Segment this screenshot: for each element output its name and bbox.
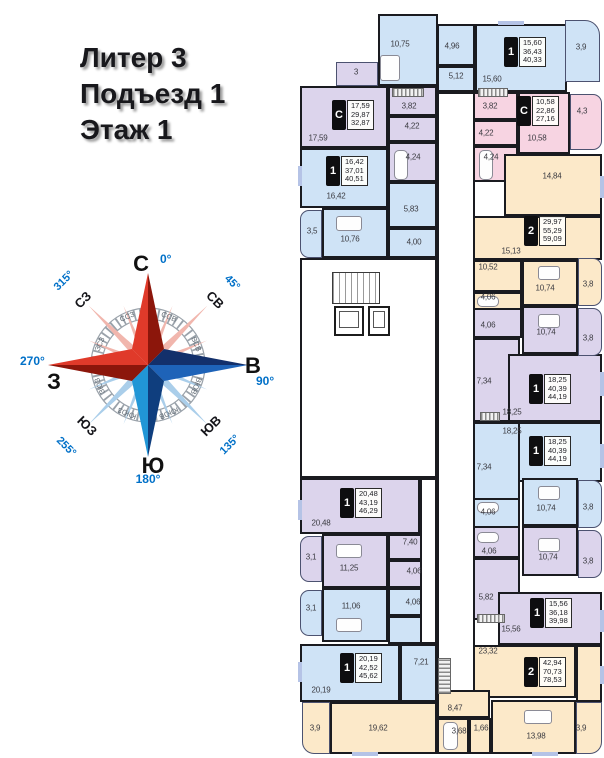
room-area-label: 3,8 xyxy=(583,334,594,343)
table-icon xyxy=(336,618,362,632)
room-area-label: 4,06 xyxy=(407,567,422,576)
apartment-area-value: 44,19 xyxy=(548,393,567,402)
room-kitchen xyxy=(322,534,388,588)
apartment-area-value: 45,62 xyxy=(359,672,378,681)
room-area-label: 10,74 xyxy=(536,328,555,337)
room-area-label: 10,52 xyxy=(478,263,497,272)
apartment-badge: 118,2540,3944,19 xyxy=(529,374,571,404)
apartment-areas-box: 18,2540,3944,19 xyxy=(544,436,571,466)
elevator-cab xyxy=(339,311,359,328)
window-segment xyxy=(298,662,302,682)
room-area-label: 14,84 xyxy=(542,172,561,181)
apartment-areas-box: 20,4843,1946,29 xyxy=(355,488,382,518)
table-icon xyxy=(336,544,362,558)
room-area-label: 19,62 xyxy=(368,724,387,733)
apartment-badge: 116,4237,0140,51 xyxy=(326,156,368,186)
room-area-label: 3,82 xyxy=(402,102,417,111)
room-area-label: 7,40 xyxy=(403,538,418,547)
room-area-label: 5,12 xyxy=(449,72,464,81)
apartment-badge: 115,5636,1839,98 xyxy=(530,598,572,628)
doormat xyxy=(477,614,505,623)
compass-label-ese: ВЮВ xyxy=(189,376,204,396)
apartment-rooms-count: 2 xyxy=(524,657,538,687)
room-corridor xyxy=(437,92,475,692)
room-area-label: 3 xyxy=(354,68,358,77)
apartment-areas-box: 20,1942,5245,62 xyxy=(355,653,382,683)
room-area-label: 4,06 xyxy=(482,547,497,556)
compass-label-ssw: ЮЮЗ xyxy=(116,405,138,421)
apartment-rooms-count: 1 xyxy=(326,156,340,186)
room-area-label: 3,5 xyxy=(307,227,318,236)
table-icon xyxy=(336,216,362,231)
room-area-label: 4,00 xyxy=(407,238,422,247)
elevator-icon xyxy=(368,306,390,336)
room-area-label: 4,06 xyxy=(481,321,496,330)
compass-deg-45: 45° xyxy=(222,273,242,293)
room-bathroom xyxy=(472,308,522,338)
room-area-label: 15,60 xyxy=(482,75,501,84)
apartment-areas-box: 29,9755,2959,09 xyxy=(539,216,566,246)
doormat xyxy=(392,88,424,97)
apartment-badge: 120,1942,5245,62 xyxy=(340,653,382,683)
apartment-areas-box: 15,5636,1839,98 xyxy=(545,598,572,628)
floor-plan-page: Литер 3 Подъезд 1 Этаж 1 xyxy=(0,0,604,758)
room-kitchen xyxy=(491,700,576,754)
room-room xyxy=(576,645,602,702)
apartment-rooms-count: 1 xyxy=(529,436,543,466)
room-area-label: 17,59 xyxy=(308,134,327,143)
room-area-label: 4,22 xyxy=(405,122,420,131)
room-area-label: 4,06 xyxy=(481,293,496,302)
room-area-label: 3,8 xyxy=(583,503,594,512)
title-liter: Литер 3 xyxy=(80,40,225,76)
room-balcony xyxy=(578,530,602,578)
apartment-areas-box: 16,4237,0140,51 xyxy=(341,156,368,186)
room-area-label: 15,13 xyxy=(501,247,520,256)
compass-deg-255: 255° xyxy=(54,435,79,460)
window-segment xyxy=(298,500,302,520)
apartment-area-value: 32,87 xyxy=(351,119,370,128)
apartment-area-value: 78,53 xyxy=(543,676,562,685)
room-area-label: 10,74 xyxy=(535,284,554,293)
compass-label-north: С xyxy=(133,251,149,276)
window-segment xyxy=(352,752,378,756)
compass-deg-315: 315° xyxy=(52,269,77,294)
apartment-badge: 229,9755,2959,09 xyxy=(524,216,566,246)
apartment-area-value: 40,33 xyxy=(523,56,542,65)
compass-deg-0: 0° xyxy=(160,252,172,266)
apartment-rooms-count: 2 xyxy=(524,216,538,246)
compass-label-se: ЮВ xyxy=(197,412,224,439)
compass-deg-180: 180° xyxy=(136,472,161,485)
apartment-areas-box: 15,6036,4340,33 xyxy=(519,37,546,67)
compass-label-sse: ЮЮВ xyxy=(158,405,180,421)
room-area-label: 13,98 xyxy=(526,732,545,741)
window-segment xyxy=(600,666,604,684)
apartment-rooms-count: 1 xyxy=(340,488,354,518)
window-segment xyxy=(600,444,604,468)
room-balcony xyxy=(570,94,602,150)
table-icon xyxy=(380,55,400,81)
room-area-label: 4,24 xyxy=(406,153,421,162)
plan-title: Литер 3 Подъезд 1 Этаж 1 xyxy=(80,40,225,148)
window-segment xyxy=(600,372,604,396)
room-area-label: 5,83 xyxy=(404,205,419,214)
compass-label-west: З xyxy=(47,369,61,394)
room-area-label: 4,96 xyxy=(445,42,460,51)
compass-deg-135: 135° xyxy=(218,433,243,458)
room-area-label: 20,19 xyxy=(311,686,330,695)
compass-deg-270: 270° xyxy=(20,354,45,368)
room-area-label: 15,56 xyxy=(501,625,520,634)
apartment-areas-box: 42,9470,7378,53 xyxy=(539,657,566,687)
room-area-label: 10,75 xyxy=(390,40,409,49)
room-area-label: 10,58 xyxy=(527,134,546,143)
room-area-label: 18,25 xyxy=(502,408,521,417)
room-area-label: 7,34 xyxy=(477,377,492,386)
apartment-rooms-count: 1 xyxy=(340,653,354,683)
doormat xyxy=(438,658,451,694)
room-area-label: 20,48 xyxy=(311,519,330,528)
table-icon xyxy=(524,710,552,724)
apartment-badge: 120,4843,1946,29 xyxy=(340,488,382,518)
room-area-label: 18,25 xyxy=(502,427,521,436)
room-area-label: 7,21 xyxy=(414,658,429,667)
apartment-badge: 242,9470,7378,53 xyxy=(524,657,566,687)
table-icon xyxy=(538,486,560,500)
compass-label-ne: СВ xyxy=(203,288,227,312)
room-shaft xyxy=(420,478,437,644)
table-icon xyxy=(538,314,560,328)
apartment-rooms-count: 1 xyxy=(530,598,544,628)
apartment-badge: 115,6036,4340,33 xyxy=(504,37,546,67)
elevator-cab xyxy=(373,311,385,328)
room-area-label: 3,8 xyxy=(583,557,594,566)
apartment-areas-box: 17,5929,8732,87 xyxy=(347,100,374,130)
stairwell-icon xyxy=(332,272,380,304)
apartment-badge: С10,5822,8627,16 xyxy=(517,96,559,126)
room-area-label: 10,74 xyxy=(536,504,555,513)
elevator-icon xyxy=(334,306,364,336)
window-segment xyxy=(298,166,302,186)
room-area-label: 3,68 xyxy=(452,727,467,736)
window-segment xyxy=(600,610,604,632)
room-area-label: 3,1 xyxy=(306,604,317,613)
room-area-label: 4,24 xyxy=(484,153,499,162)
room-area-label: 3,9 xyxy=(576,43,587,52)
room-area-label: 10,74 xyxy=(538,553,557,562)
apartment-area-value: 46,29 xyxy=(359,507,378,516)
apartment-area-value: 27,16 xyxy=(536,115,555,124)
room-kitchen xyxy=(322,588,388,642)
doormat xyxy=(480,412,500,421)
table-icon xyxy=(538,266,560,280)
doormat xyxy=(478,88,508,97)
room-area-label: 4,22 xyxy=(479,129,494,138)
room-area-label: 8,47 xyxy=(448,704,463,713)
room-area-label: 1,66 xyxy=(474,724,489,733)
room-area-label: 10,76 xyxy=(340,235,359,244)
room-area-label: 5,82 xyxy=(479,593,494,602)
apartment-areas-box: 18,2540,3944,19 xyxy=(544,374,571,404)
apartment-areas-box: 10,5822,8627,16 xyxy=(532,96,559,126)
room-area-label: 4,06 xyxy=(406,598,421,607)
apartment-rooms-count: 1 xyxy=(504,37,518,67)
room-area-label: 3,82 xyxy=(483,102,498,111)
window-segment xyxy=(498,21,524,25)
apartment-badge: С17,5929,8732,87 xyxy=(332,100,374,130)
room-balcony xyxy=(300,590,322,636)
room-area-label: 11,06 xyxy=(342,602,360,611)
window-segment xyxy=(600,176,604,198)
room-area-label: 4,3 xyxy=(577,107,588,116)
room-area-label: 16,42 xyxy=(326,192,345,201)
bathtub-icon xyxy=(477,532,499,543)
apartment-area-value: 40,51 xyxy=(345,175,364,184)
room-area-label: 4,06 xyxy=(481,508,496,517)
apartment-rooms-count: С xyxy=(332,100,346,130)
compass-deg-90: 90° xyxy=(256,374,274,388)
apartment-area-value: 39,98 xyxy=(549,617,568,626)
room-area-label: 11,25 xyxy=(340,564,358,573)
table-icon xyxy=(538,538,560,552)
window-segment xyxy=(532,752,558,756)
room-hallway xyxy=(437,690,490,718)
compass-rose: С В Ю З 0° 90° 180° 270° 45° 135° 255° 3… xyxy=(18,250,286,485)
apartment-rooms-count: С xyxy=(517,96,531,126)
room-area-label: 3,1 xyxy=(306,553,317,562)
apartment-area-value: 44,19 xyxy=(548,455,567,464)
room-area-label: 23,32 xyxy=(478,647,497,656)
room-room xyxy=(504,154,602,216)
apartment-badge: 118,2540,3944,19 xyxy=(529,436,571,466)
room-balcony xyxy=(578,308,602,356)
apartment-rooms-count: 1 xyxy=(529,374,543,404)
room-hallway xyxy=(400,644,437,702)
room-area-label: 7,34 xyxy=(477,463,492,472)
apartment-area-value: 59,09 xyxy=(543,235,562,244)
title-floor: Этаж 1 xyxy=(80,112,225,148)
room-area-label: 3,9 xyxy=(310,724,321,733)
room-area-label: 3,8 xyxy=(583,280,594,289)
title-entrance: Подъезд 1 xyxy=(80,76,225,112)
room-area-label: 3,9 xyxy=(576,724,587,733)
